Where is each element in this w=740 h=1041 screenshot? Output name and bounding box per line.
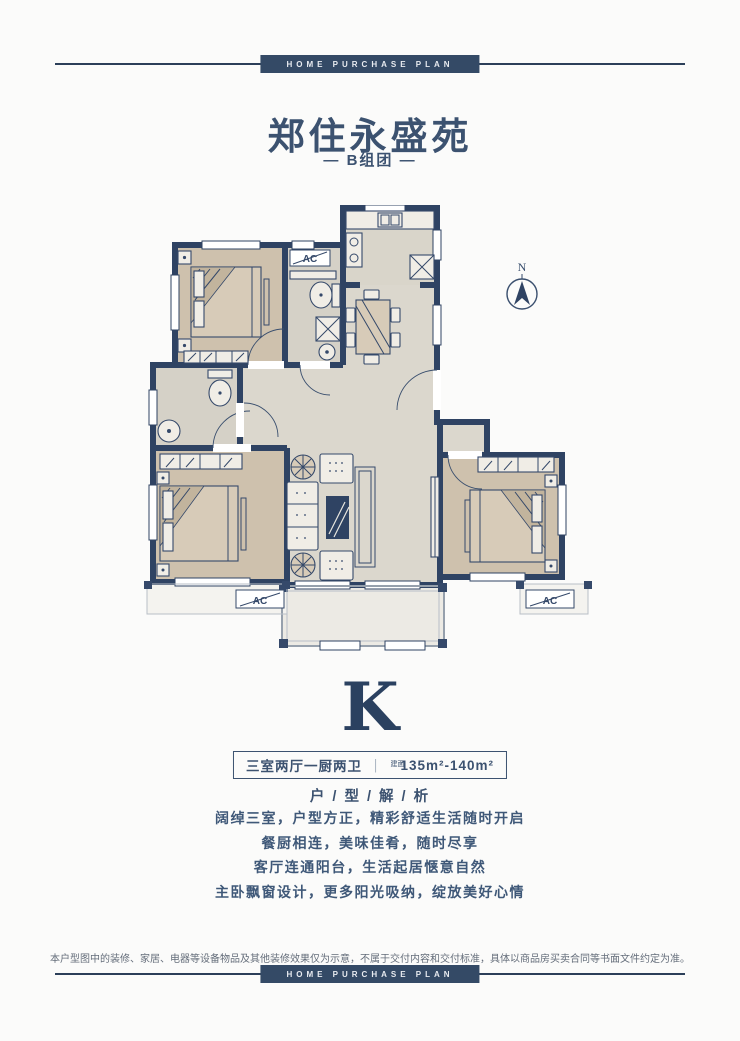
bottom-banner-label: HOME PURCHASE PLAN bbox=[260, 965, 479, 983]
unit-spec-box: 三室两厅一厨两卫 ｜ 建面 135m²-140m² bbox=[233, 751, 507, 779]
unit-type-letter: K bbox=[0, 668, 740, 746]
analysis-heading: 户 / 型 / 解 / 析 bbox=[0, 785, 740, 806]
ac-label-left-bay: AC bbox=[253, 596, 267, 607]
compass-north-label: N bbox=[518, 260, 527, 274]
disclaimer-text: 本户型图中的装修、家居、电器等设备物品及其他装修效果仅为示意，不属于交付内容和交… bbox=[0, 950, 740, 965]
floor-plan: AC bbox=[140, 205, 600, 660]
room-config-text: 三室两厅一厨两卫 bbox=[246, 755, 362, 775]
project-subtitle: — B组团 — bbox=[0, 149, 740, 170]
analysis-section: 阔绰三室，户型方正，精彩舒适生活随时开启 餐厨相连，美味佳肴，随时尽享 客厅连通… bbox=[0, 806, 740, 904]
spec-divider: ｜ bbox=[369, 755, 384, 775]
analysis-line-2: 餐厨相连，美味佳肴，随时尽享 bbox=[0, 831, 740, 856]
area-prefix-label: 建面 bbox=[390, 761, 398, 769]
analysis-line-1: 阔绰三室，户型方正，精彩舒适生活随时开启 bbox=[0, 806, 740, 831]
ac-label-right-bay: AC bbox=[543, 596, 557, 607]
analysis-line-4: 主卧飘窗设计，更多阳光吸纳，绽放美好心情 bbox=[0, 880, 740, 905]
top-banner-label: HOME PURCHASE PLAN bbox=[260, 55, 479, 73]
area-range-text: 135m²-140m² bbox=[400, 758, 494, 773]
poster-page: HOME PURCHASE PLAN 郑住永盛苑 — B组团 — bbox=[0, 0, 740, 1041]
analysis-line-3: 客厅连通阳台，生活起居惬意自然 bbox=[0, 855, 740, 880]
ac-label-hall: AC bbox=[303, 254, 317, 265]
compass-icon: N bbox=[507, 260, 537, 309]
